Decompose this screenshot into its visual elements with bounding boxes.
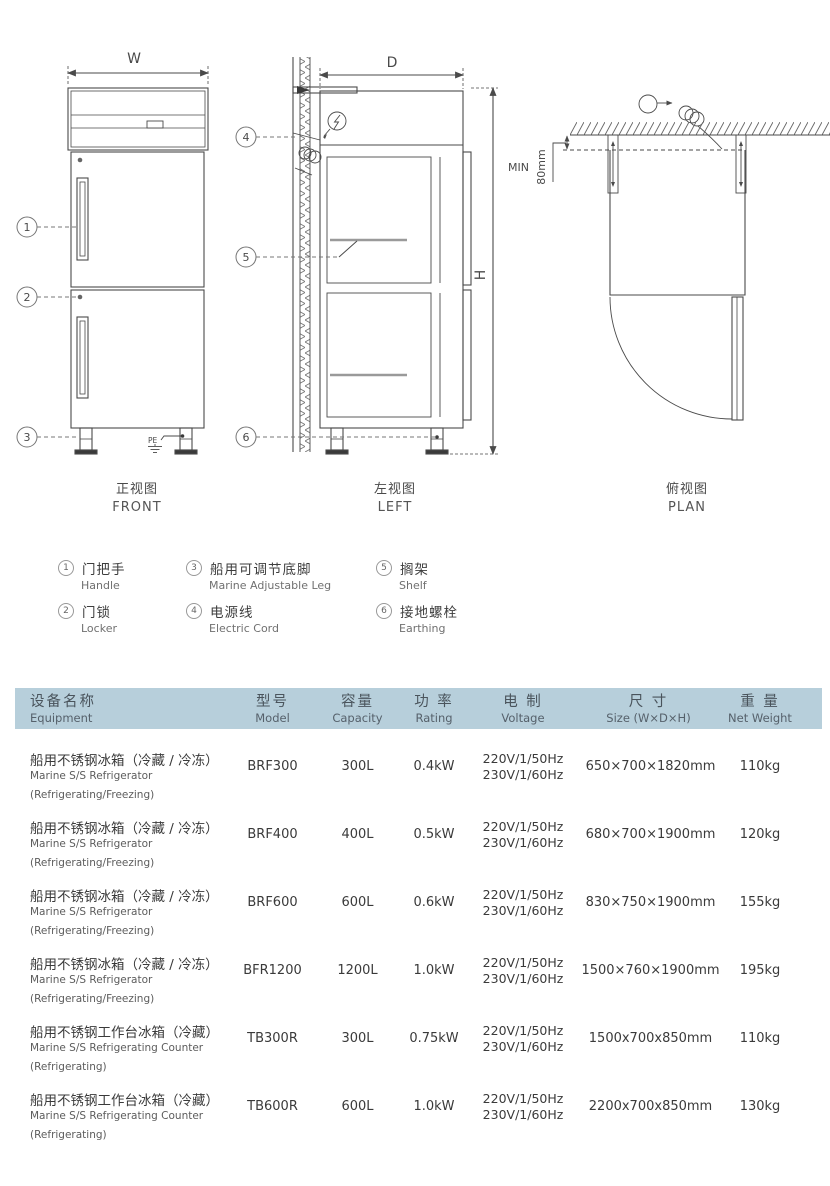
col-header-weight: 重 量 Net Weight <box>728 693 822 729</box>
cell-rating: 1.0kW <box>395 1079 473 1147</box>
plan-view-label-zh: 俯视图 <box>622 478 752 497</box>
cell-weight: 110kg <box>728 1011 822 1079</box>
svg-text:2: 2 <box>24 291 31 304</box>
legend-en-earthing: Earthing <box>399 622 458 635</box>
legend-zh-handle: 门把手 <box>82 558 126 578</box>
svg-text:6: 6 <box>243 431 250 444</box>
cell-model: BRF600 <box>225 875 320 943</box>
cell-voltage: 220V/1/50Hz230V/1/60Hz <box>473 1011 573 1079</box>
legend-en-handle: Handle <box>81 579 126 592</box>
upper-door-side <box>463 152 471 285</box>
legend-column-1: 1 门把手 Handle 2 门锁 Locker <box>58 558 126 644</box>
table-row: 船用不锈钢冰箱（冷藏 / 冷冻） Marine S/S Refrigerator… <box>15 807 822 875</box>
clearance-label: 80mm <box>535 149 548 184</box>
svg-text:3: 3 <box>24 431 31 444</box>
legend-num-5: 5 <box>376 560 392 576</box>
legend-item-earthing: 6 接地螺栓 Earthing <box>376 601 458 635</box>
cell-weight: 195kg <box>728 943 822 1011</box>
legend-num-1: 1 <box>58 560 74 576</box>
svg-text:5: 5 <box>243 251 250 264</box>
cell-capacity: 400L <box>320 807 395 875</box>
legend-num-3: 3 <box>186 560 202 576</box>
cell-equipment: 船用不锈钢冰箱（冷藏 / 冷冻） Marine S/S Refrigerator… <box>15 943 225 1011</box>
dim-w-label: W <box>127 51 141 67</box>
cell-rating: 0.4kW <box>395 739 473 807</box>
left-view-label-zh: 左视图 <box>330 478 460 497</box>
front-callouts: 1 2 3 <box>17 217 79 447</box>
min-label: MIN <box>508 161 529 174</box>
cell-size: 680×700×1900mm <box>573 807 728 875</box>
legend-item-handle: 1 门把手 Handle <box>58 558 126 592</box>
control-badge <box>147 121 163 128</box>
col-header-equipment: 设备名称 Equipment <box>15 693 225 729</box>
front-view-label: 正视图 FRONT <box>72 478 202 515</box>
cell-equipment: 船用不锈钢工作台冰箱（冷藏） Marine S/S Refrigerating … <box>15 1011 225 1079</box>
col-header-capacity: 容量 Capacity <box>320 693 395 729</box>
front-cabinet-outline: W <box>68 51 208 454</box>
cell-rating: 1.0kW <box>395 943 473 1011</box>
cell-voltage: 220V/1/50Hz230V/1/60Hz <box>473 1079 573 1147</box>
cell-model: BFR1200 <box>225 943 320 1011</box>
dim-h-label: H <box>473 270 489 281</box>
upper-door-lock <box>78 158 83 163</box>
cell-size: 830×750×1900mm <box>573 875 728 943</box>
plan-view-label-en: PLAN <box>622 500 752 515</box>
cell-size: 650×700×1820mm <box>573 739 728 807</box>
lower-door-lock <box>78 295 83 300</box>
dim-h: H <box>450 88 498 454</box>
table-row: 船用不锈钢工作台冰箱（冷藏） Marine S/S Refrigerating … <box>15 1079 822 1147</box>
dim-d-label: D <box>387 55 398 71</box>
table-row: 船用不锈钢冰箱（冷藏 / 冷冻） Marine S/S Refrigerator… <box>15 875 822 943</box>
legend-num-6: 6 <box>376 603 392 619</box>
cell-rating: 0.6kW <box>395 875 473 943</box>
cell-model: TB600R <box>225 1079 320 1147</box>
col-header-model: 型号 Model <box>225 693 320 729</box>
lower-door <box>71 290 204 428</box>
table-row: 船用不锈钢工作台冰箱（冷藏） Marine S/S Refrigerating … <box>15 1011 822 1079</box>
cell-capacity: 300L <box>320 739 395 807</box>
plug-lightning-icon <box>328 112 346 130</box>
legend-num-4: 4 <box>186 603 202 619</box>
pe-label: PE <box>148 436 158 445</box>
adjustable-legs-side <box>326 428 448 454</box>
lower-door-side <box>463 290 471 420</box>
legend-en-locker: Locker <box>81 622 126 635</box>
cell-weight: 155kg <box>728 875 822 943</box>
wall-bracket <box>293 86 357 94</box>
legend-en-leg: Marine Adjustable Leg <box>209 579 331 592</box>
legend-zh-shelf: 搁架 <box>400 558 429 578</box>
svg-text:1: 1 <box>24 221 31 234</box>
cell-rating: 0.75kW <box>395 1011 473 1079</box>
cell-size: 2200x700x850mm <box>573 1079 728 1147</box>
cell-weight: 130kg <box>728 1079 822 1147</box>
cell-rating: 0.5kW <box>395 807 473 875</box>
front-view-label-zh: 正视图 <box>72 478 202 497</box>
front-view-drawing: W <box>14 45 229 470</box>
left-view-drawing: D <box>235 45 510 470</box>
door-handle <box>77 178 88 398</box>
left-view-label: 左视图 LEFT <box>330 478 460 515</box>
cell-weight: 110kg <box>728 739 822 807</box>
left-cabinet-outline <box>320 91 471 428</box>
legend-num-2: 2 <box>58 603 74 619</box>
plan-cabinet-outline <box>610 150 745 295</box>
legend-en-shelf: Shelf <box>399 579 458 592</box>
cell-weight: 120kg <box>728 807 822 875</box>
wall-hatch-band <box>570 122 830 135</box>
spec-table-body: 船用不锈钢冰箱（冷藏 / 冷冻） Marine S/S Refrigerator… <box>15 739 822 1147</box>
cell-size: 1500x700x850mm <box>573 1011 728 1079</box>
upper-door <box>71 152 204 287</box>
plan-view-label: 俯视图 PLAN <box>622 478 752 515</box>
cell-model: BRF300 <box>225 739 320 807</box>
cell-capacity: 600L <box>320 1079 395 1147</box>
legend-zh-cord: 电源线 <box>210 601 254 621</box>
cell-capacity: 300L <box>320 1011 395 1079</box>
bulkhead-wall <box>293 57 310 452</box>
adjustable-legs <box>75 428 197 454</box>
cell-model: TB300R <box>225 1011 320 1079</box>
shelves <box>330 240 407 375</box>
cell-equipment: 船用不锈钢工作台冰箱（冷藏） Marine S/S Refrigerating … <box>15 1079 225 1147</box>
legend-en-cord: Electric Cord <box>209 622 331 635</box>
legend-item-leg: 3 船用可调节底脚 Marine Adjustable Leg <box>186 558 331 592</box>
legend-zh-leg: 船用可调节底脚 <box>210 558 312 578</box>
table-row: 船用不锈钢冰箱（冷藏 / 冷冻） Marine S/S Refrigerator… <box>15 739 822 807</box>
legend-item-cord: 4 电源线 Electric Cord <box>186 601 331 635</box>
col-header-voltage: 电 制 Voltage <box>473 693 573 729</box>
catalog-page: W <box>0 0 830 1186</box>
table-row: 船用不锈钢冰箱（冷藏 / 冷冻） Marine S/S Refrigerator… <box>15 943 822 1011</box>
left-view-label-en: LEFT <box>330 500 460 515</box>
cell-capacity: 600L <box>320 875 395 943</box>
cell-equipment: 船用不锈钢冰箱（冷藏 / 冷冻） Marine S/S Refrigerator… <box>15 807 225 875</box>
cell-model: BRF400 <box>225 807 320 875</box>
cell-capacity: 1200L <box>320 943 395 1011</box>
cell-voltage: 220V/1/50Hz230V/1/60Hz <box>473 943 573 1011</box>
legend-zh-earthing: 接地螺栓 <box>400 601 458 621</box>
cell-equipment: 船用不锈钢冰箱（冷藏 / 冷冻） Marine S/S Refrigerator… <box>15 739 225 807</box>
left-callouts: 4 5 6 <box>236 127 439 447</box>
col-header-size: 尺 寸 Size (W×D×H) <box>573 693 728 729</box>
spec-table-header: 设备名称 Equipment 型号 Model 容量 Capacity 功 率 … <box>15 688 822 729</box>
cell-voltage: 220V/1/50Hz230V/1/60Hz <box>473 807 573 875</box>
plan-view-drawing: MIN 80mm <box>500 70 830 470</box>
legend-item-locker: 2 门锁 Locker <box>58 601 126 635</box>
legend-column-3: 5 搁架 Shelf 6 接地螺栓 Earthing <box>376 558 458 644</box>
cell-equipment: 船用不锈钢冰箱（冷藏 / 冷冻） Marine S/S Refrigerator… <box>15 875 225 943</box>
door-swing <box>610 297 743 420</box>
legend-zh-locker: 门锁 <box>82 601 111 621</box>
cell-voltage: 220V/1/50Hz230V/1/60Hz <box>473 875 573 943</box>
spec-table: 设备名称 Equipment 型号 Model 容量 Capacity 功 率 … <box>15 688 822 1147</box>
cell-voltage: 220V/1/50Hz230V/1/60Hz <box>473 739 573 807</box>
svg-text:4: 4 <box>243 131 250 144</box>
cell-size: 1500×760×1900mm <box>573 943 728 1011</box>
col-header-rating: 功 率 Rating <box>395 693 473 729</box>
legend-item-shelf: 5 搁架 Shelf <box>376 558 458 592</box>
min-clearance-dim: MIN 80mm <box>508 136 743 185</box>
front-view-label-en: FRONT <box>72 500 202 515</box>
hinge-brackets <box>608 135 746 193</box>
legend-column-2: 3 船用可调节底脚 Marine Adjustable Leg 4 电源线 El… <box>186 558 331 644</box>
